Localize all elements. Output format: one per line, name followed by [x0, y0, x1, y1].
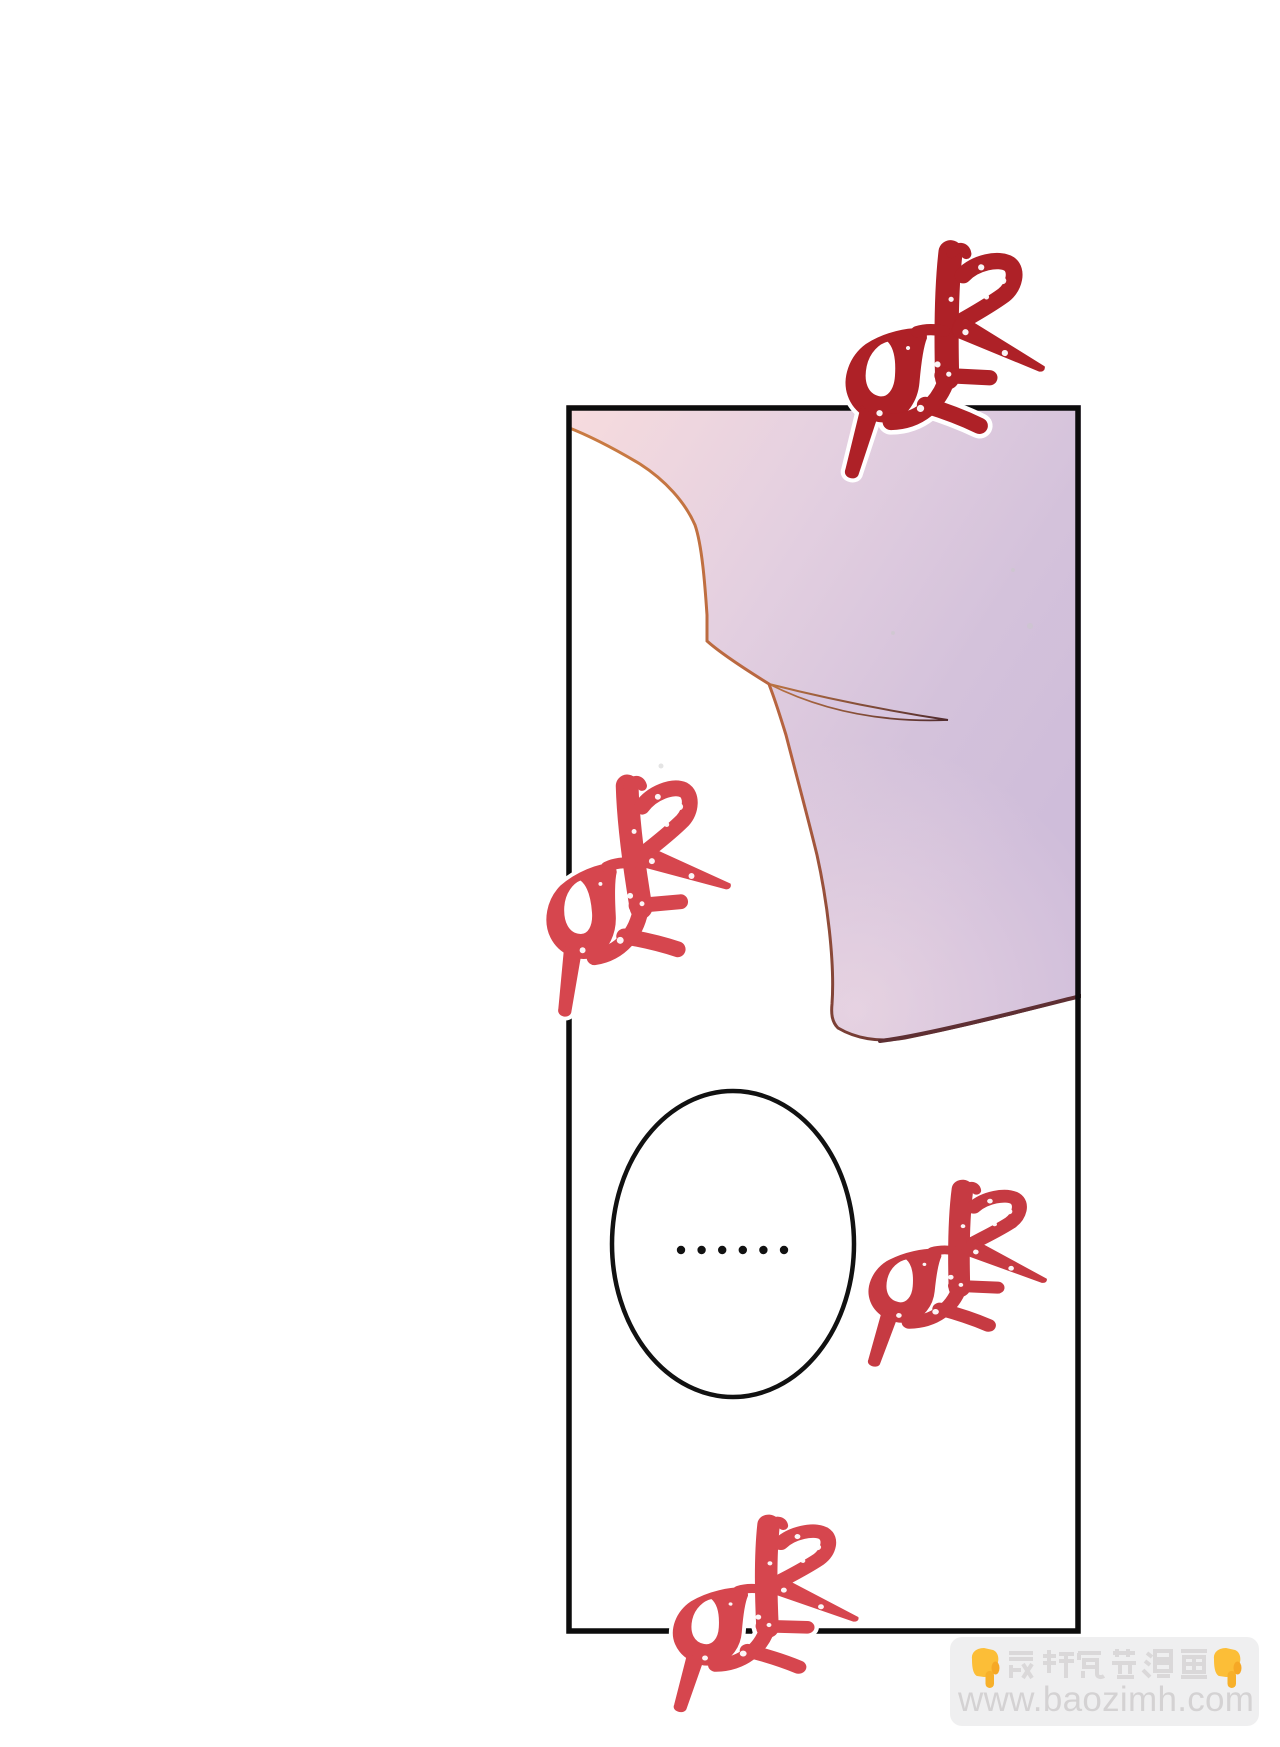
svg-text:www.baozimh.com: www.baozimh.com: [957, 1680, 1254, 1719]
